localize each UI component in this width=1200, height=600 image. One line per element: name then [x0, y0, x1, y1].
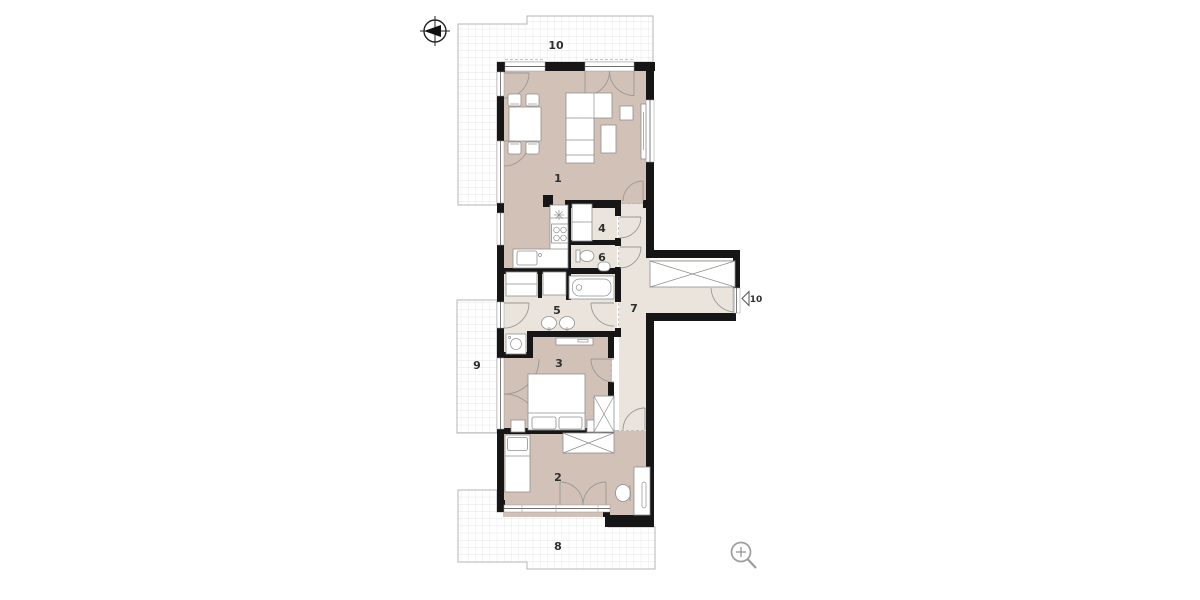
washing-machine: [506, 334, 526, 354]
room-label-terrace-north: 10: [548, 39, 564, 52]
hall-wardrobe: [650, 261, 735, 287]
stove: [552, 224, 569, 243]
room-label-storage: 4: [598, 222, 606, 235]
desk-chair: [616, 485, 631, 502]
room-label-hallway: 7: [630, 302, 638, 315]
dresser: [556, 338, 593, 345]
north-arrow-icon: [420, 16, 450, 46]
desk: [634, 467, 650, 515]
coffee-table: [601, 125, 616, 153]
tv-board: [641, 104, 646, 159]
room-label-terrace-south: 8: [554, 540, 562, 553]
storage-cabinet: [572, 204, 592, 241]
bathroom-cabinets: [506, 272, 566, 296]
bathtub: [569, 276, 614, 299]
nightstand-left: [511, 420, 525, 432]
extractor-hood-symbol: [554, 210, 564, 220]
room-label-bathroom: 5: [553, 304, 561, 317]
zoom-in-icon[interactable]: [732, 543, 757, 569]
floor-plan-canvas: 1 2 3 4 5 6 7 8 9 10 10: [0, 0, 1200, 600]
toilet: [576, 250, 594, 262]
room-label-wc: 6: [598, 251, 606, 264]
entrance-marker: 10: [742, 292, 762, 306]
room-label-bedroom-second: 3: [555, 357, 563, 370]
entrance-label: 10: [750, 295, 763, 305]
wardrobe: [563, 433, 614, 453]
floor-plan-svg: 1 2 3 4 5 6 7 8 9 10 10: [0, 0, 1200, 600]
side-table: [620, 106, 633, 120]
kitchen-sink: [517, 251, 537, 265]
room-label-bedroom-main: 2: [554, 471, 562, 484]
room-label-terrace-west: 9: [473, 359, 481, 372]
room-label-living: 1: [554, 172, 562, 185]
entrance-arrow-icon: [742, 292, 749, 306]
wardrobe: [594, 396, 614, 432]
